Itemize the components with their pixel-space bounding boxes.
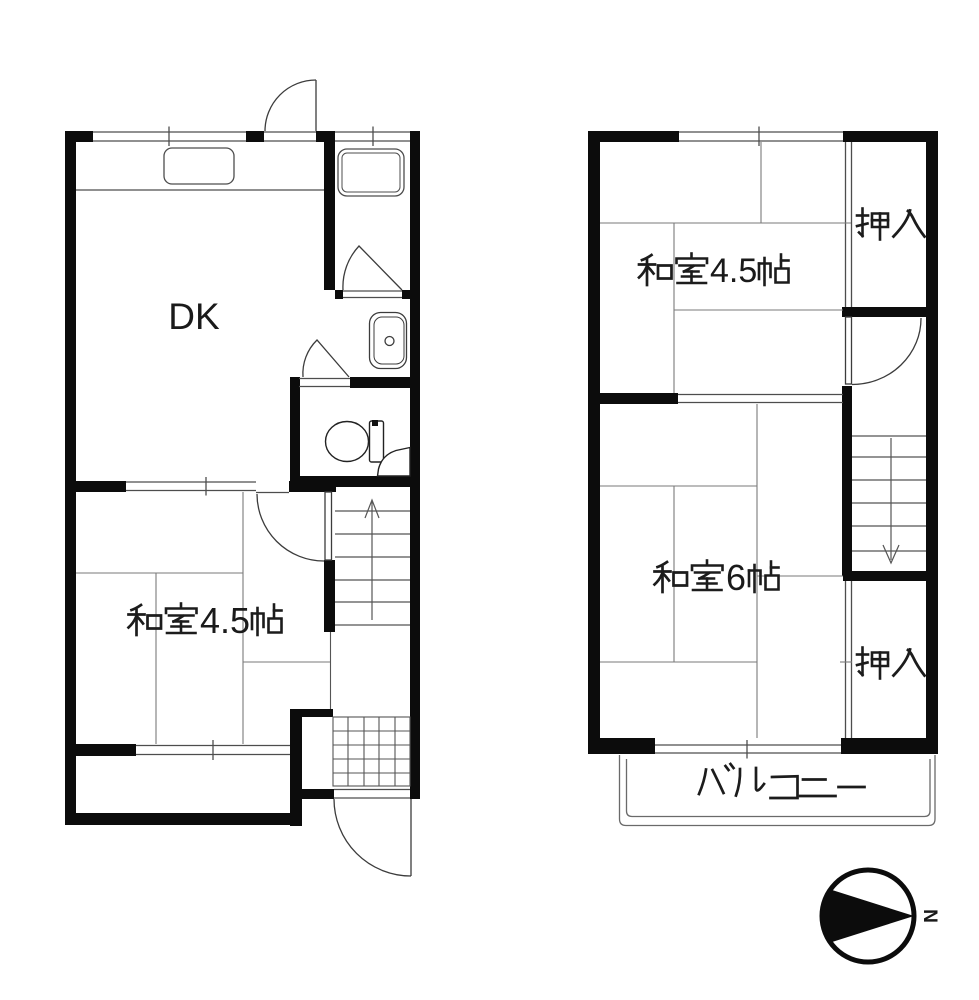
svg-text:4.5: 4.5 xyxy=(710,252,757,290)
svg-text:N: N xyxy=(919,909,940,923)
svg-text:DK: DK xyxy=(168,296,220,337)
svg-text:4.5: 4.5 xyxy=(200,600,250,641)
svg-text:6: 6 xyxy=(726,557,746,598)
